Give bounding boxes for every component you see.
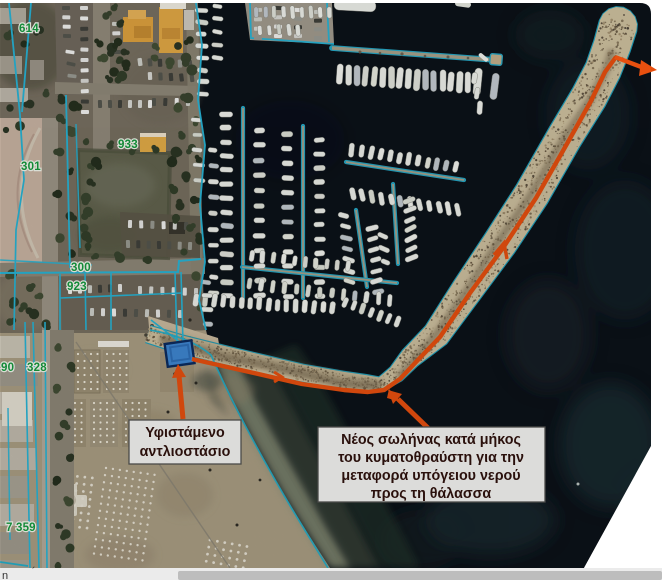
svg-text:αντλιοστάσιο: αντλιοστάσιο	[140, 444, 231, 460]
svg-text:προς τη θάλασσα: προς τη θάλασσα	[371, 486, 492, 502]
svg-text:n: n	[2, 570, 8, 580]
svg-text:του κυματοθραύστη για την: του κυματοθραύστη για την	[338, 450, 524, 466]
svg-text:Νέος σωλήνας κατά μήκος: Νέος σωλήνας κατά μήκος	[341, 432, 521, 448]
svg-text:Υφιστάμενο: Υφιστάμενο	[145, 425, 225, 441]
svg-text:μεταφορά υπόγειου νερού: μεταφορά υπόγειου νερού	[341, 468, 520, 484]
svg-text:´: ´	[32, 566, 36, 578]
